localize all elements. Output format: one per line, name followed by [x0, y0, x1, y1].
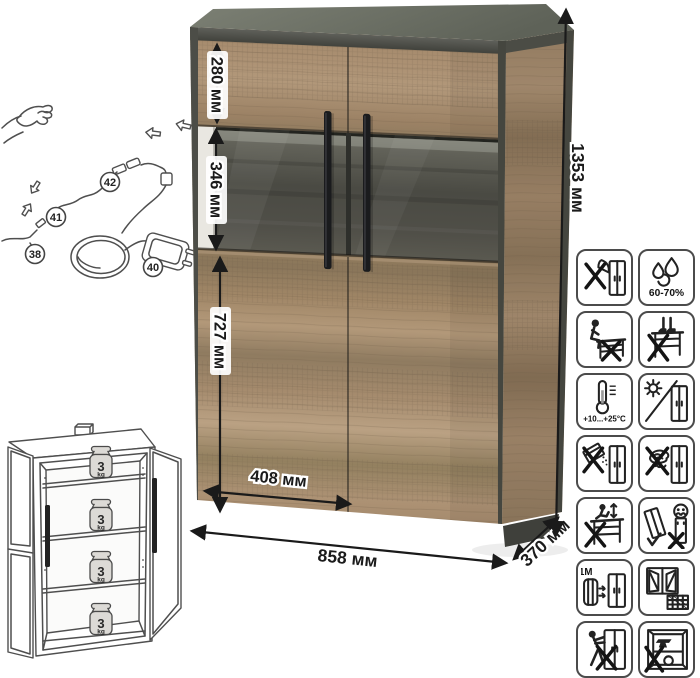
humidity-value: 60-70% — [649, 288, 684, 299]
dimension-label-346: 346 мм — [207, 162, 225, 219]
no-abrasive-cleaners-icon — [576, 435, 633, 492]
door-handle-left — [324, 111, 334, 269]
callout-40: 40 — [144, 258, 163, 277]
min-distance-value: ≥1M — [581, 567, 592, 578]
carry-upright-two-people-icon — [638, 497, 695, 554]
cabinet-front-face — [190, 27, 506, 541]
callout-41: 41 — [47, 208, 66, 227]
callout-38: 38 — [26, 243, 45, 264]
temperature-value: +10...+25°C — [583, 414, 626, 423]
hand-drawing — [2, 106, 52, 143]
callout-41-label: 41 — [50, 212, 62, 224]
no-sitting-icon — [576, 311, 633, 368]
no-standing-icon — [638, 311, 695, 368]
callout-42: 42 — [101, 172, 120, 192]
no-sharp-tools-icon — [576, 249, 633, 306]
dimension-top-section: 280 мм — [207, 45, 228, 122]
door-handle-right — [363, 114, 373, 272]
dimension-label-1353: 1353 мм — [568, 143, 588, 213]
keep-1m-from-heat-icon: ≥1M — [576, 559, 633, 616]
no-pushing-icon — [576, 621, 633, 678]
load-badge: 3 kg — [90, 500, 112, 532]
lighting-kit-diagram: 42 41 38 40 — [2, 106, 197, 278]
load-badge: 3 kg — [90, 552, 112, 584]
load-unit: kg — [97, 472, 105, 479]
load-badge: 3 kg — [90, 604, 112, 636]
shelf-load-diagram: 3 kg 3 kg 3 kg 3 kg — [8, 424, 181, 658]
no-overloading-icon — [638, 621, 695, 678]
no-direct-sunlight-icon — [638, 373, 695, 430]
callout-40-label: 40 — [147, 262, 159, 274]
product-spec-sheet: 42 41 38 40 — [0, 0, 700, 678]
load-unit: kg — [97, 629, 105, 636]
ventilate-room-icon — [638, 559, 695, 616]
care-icons-grid: 60-70% +10...+25°C — [576, 249, 695, 678]
temperature-range-icon: +10...+25°C — [576, 373, 633, 430]
cabinet-side-face — [498, 26, 578, 528]
load-unit: kg — [97, 577, 105, 584]
callout-38-label: 38 — [29, 249, 41, 261]
cabinet-photo — [190, 4, 578, 557]
dimension-total-width: 858 мм — [192, 531, 506, 571]
glass-display-section — [198, 126, 498, 261]
load-unit: kg — [97, 525, 105, 532]
no-jumping-icon — [576, 497, 633, 554]
dimension-label-280: 280 мм — [208, 57, 226, 114]
dimension-label-727: 727 мм — [211, 313, 229, 370]
direction-arrows — [19, 119, 191, 218]
humidity-60-70-icon: 60-70% — [638, 249, 695, 306]
callout-42-label: 42 — [104, 177, 116, 189]
load-badge: 3 kg — [90, 447, 112, 479]
no-scouring-pads-icon — [638, 435, 695, 492]
